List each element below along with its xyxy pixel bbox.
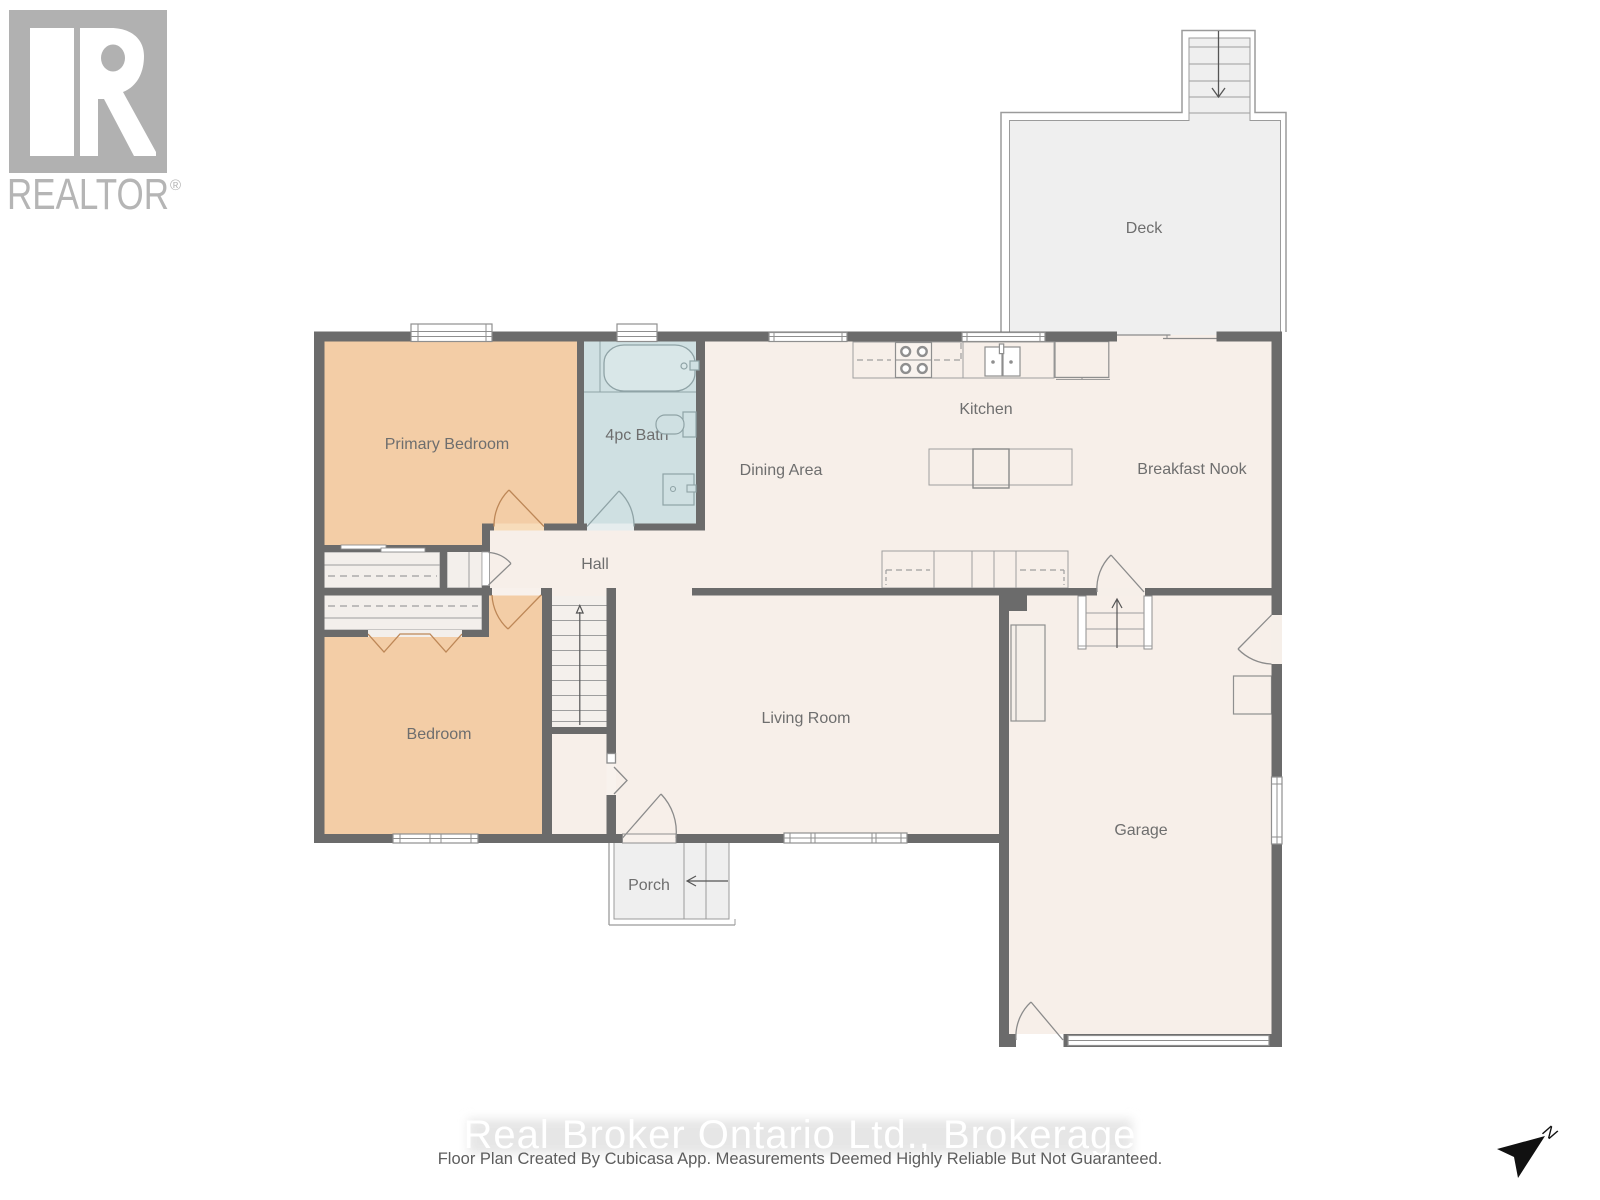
- svg-text:Floor Plan Created By Cubicasa: Floor Plan Created By Cubicasa App. Meas…: [438, 1150, 1163, 1168]
- svg-text:Garage: Garage: [1114, 822, 1167, 839]
- svg-text:®: ®: [170, 177, 181, 194]
- svg-text:REALTOR: REALTOR: [7, 170, 169, 219]
- svg-text:Deck: Deck: [1126, 220, 1163, 237]
- svg-text:Breakfast Nook: Breakfast Nook: [1137, 461, 1247, 478]
- svg-text:Bedroom: Bedroom: [407, 726, 472, 743]
- svg-text:Porch: Porch: [628, 877, 670, 894]
- svg-text:Hall: Hall: [581, 556, 609, 573]
- svg-text:Primary Bedroom: Primary Bedroom: [385, 436, 509, 453]
- svg-text:Dining Area: Dining Area: [740, 462, 823, 479]
- svg-text:Kitchen: Kitchen: [959, 401, 1012, 418]
- svg-text:Living Room: Living Room: [762, 710, 851, 727]
